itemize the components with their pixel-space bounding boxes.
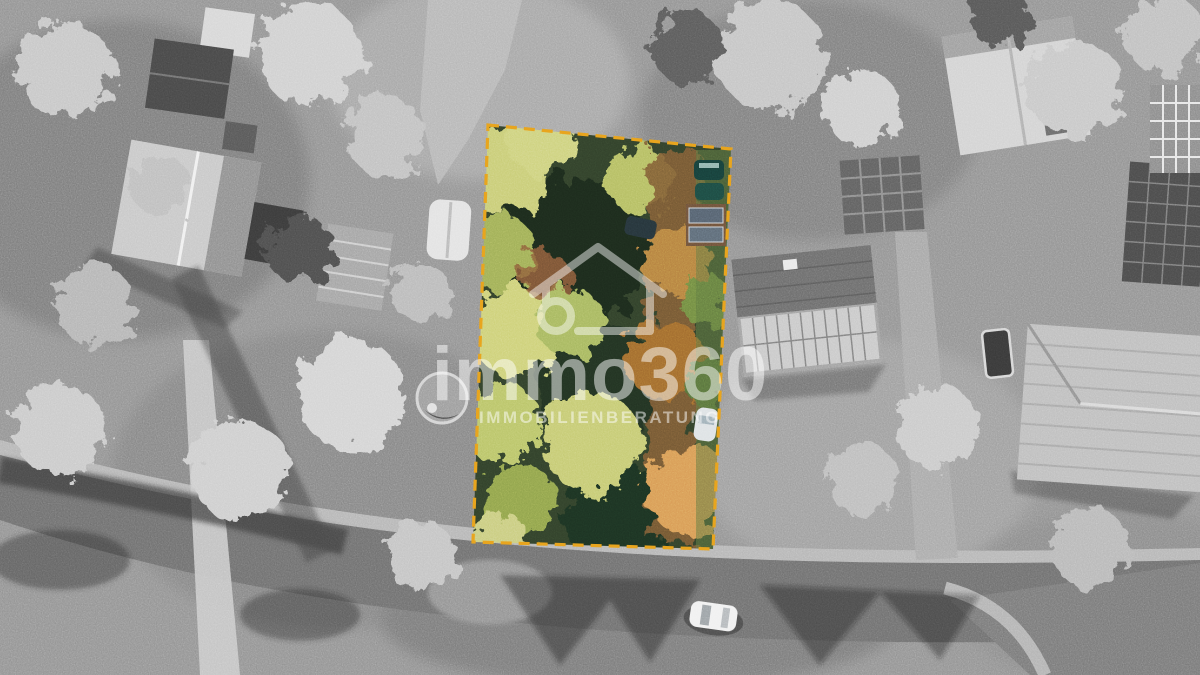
watermark-tagline: IMMOBILIENBERATUNG — [479, 408, 721, 427]
photo-canvas: immo360 IMMOBILIENBERATUNG — [0, 0, 1200, 675]
watermark-brand: immo360 — [432, 332, 769, 417]
aerial-photo: immo360 IMMOBILIENBERATUNG — [0, 0, 1200, 675]
